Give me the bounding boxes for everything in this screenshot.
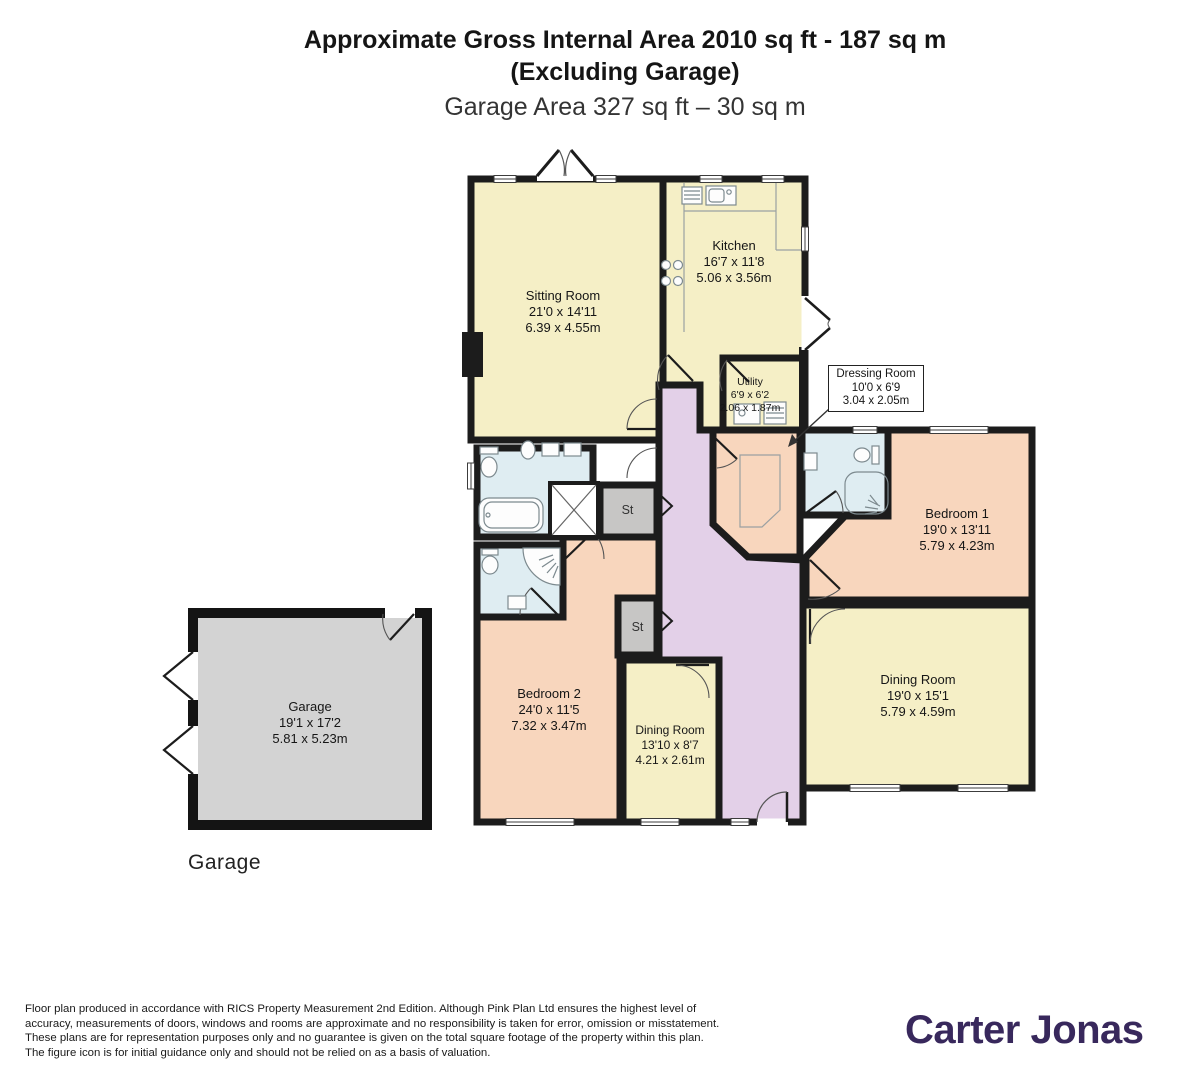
disclaimer-text: Floor plan produced in accordance with R… <box>25 1002 725 1061</box>
floorplan-page: Approximate Gross Internal Area 2010 sq … <box>0 0 1200 1087</box>
storage1-label: St <box>600 503 655 517</box>
dining-room-small-label: Dining Room 13'10 x 8'7 4.21 x 2.61m <box>622 723 718 768</box>
dressing-room-callout: Dressing Room 10'0 x 6'9 3.04 x 2.05m <box>828 365 924 412</box>
sitting-room-label: Sitting Room 21'0 x 14'11 6.39 x 4.55m <box>468 288 658 336</box>
bedroom1-label: Bedroom 1 19'0 x 13'11 5.79 x 4.23m <box>882 506 1032 554</box>
dining-room-large-label: Dining Room 19'0 x 15'1 5.79 x 4.59m <box>818 672 1018 720</box>
kitchen-side-door <box>802 296 831 350</box>
carter-jonas-logo: Carter Jonas <box>905 1008 1185 1053</box>
garage-room-label: Garage 19'1 x 17'2 5.81 x 5.23m <box>210 699 410 747</box>
kitchen-label: Kitchen 16'7 x 11'8 5.06 x 3.56m <box>664 238 804 286</box>
utility-label: Utility 6'9 x 6'2 2.06 x 1.87m <box>702 376 798 415</box>
french-doors <box>537 150 593 181</box>
storage2-label: St <box>618 620 657 634</box>
bedroom2-label: Bedroom 2 24'0 x 11'5 7.32 x 3.47m <box>478 686 620 734</box>
cupboard-crossbox <box>550 483 598 537</box>
garage-caption: Garage <box>188 851 261 875</box>
